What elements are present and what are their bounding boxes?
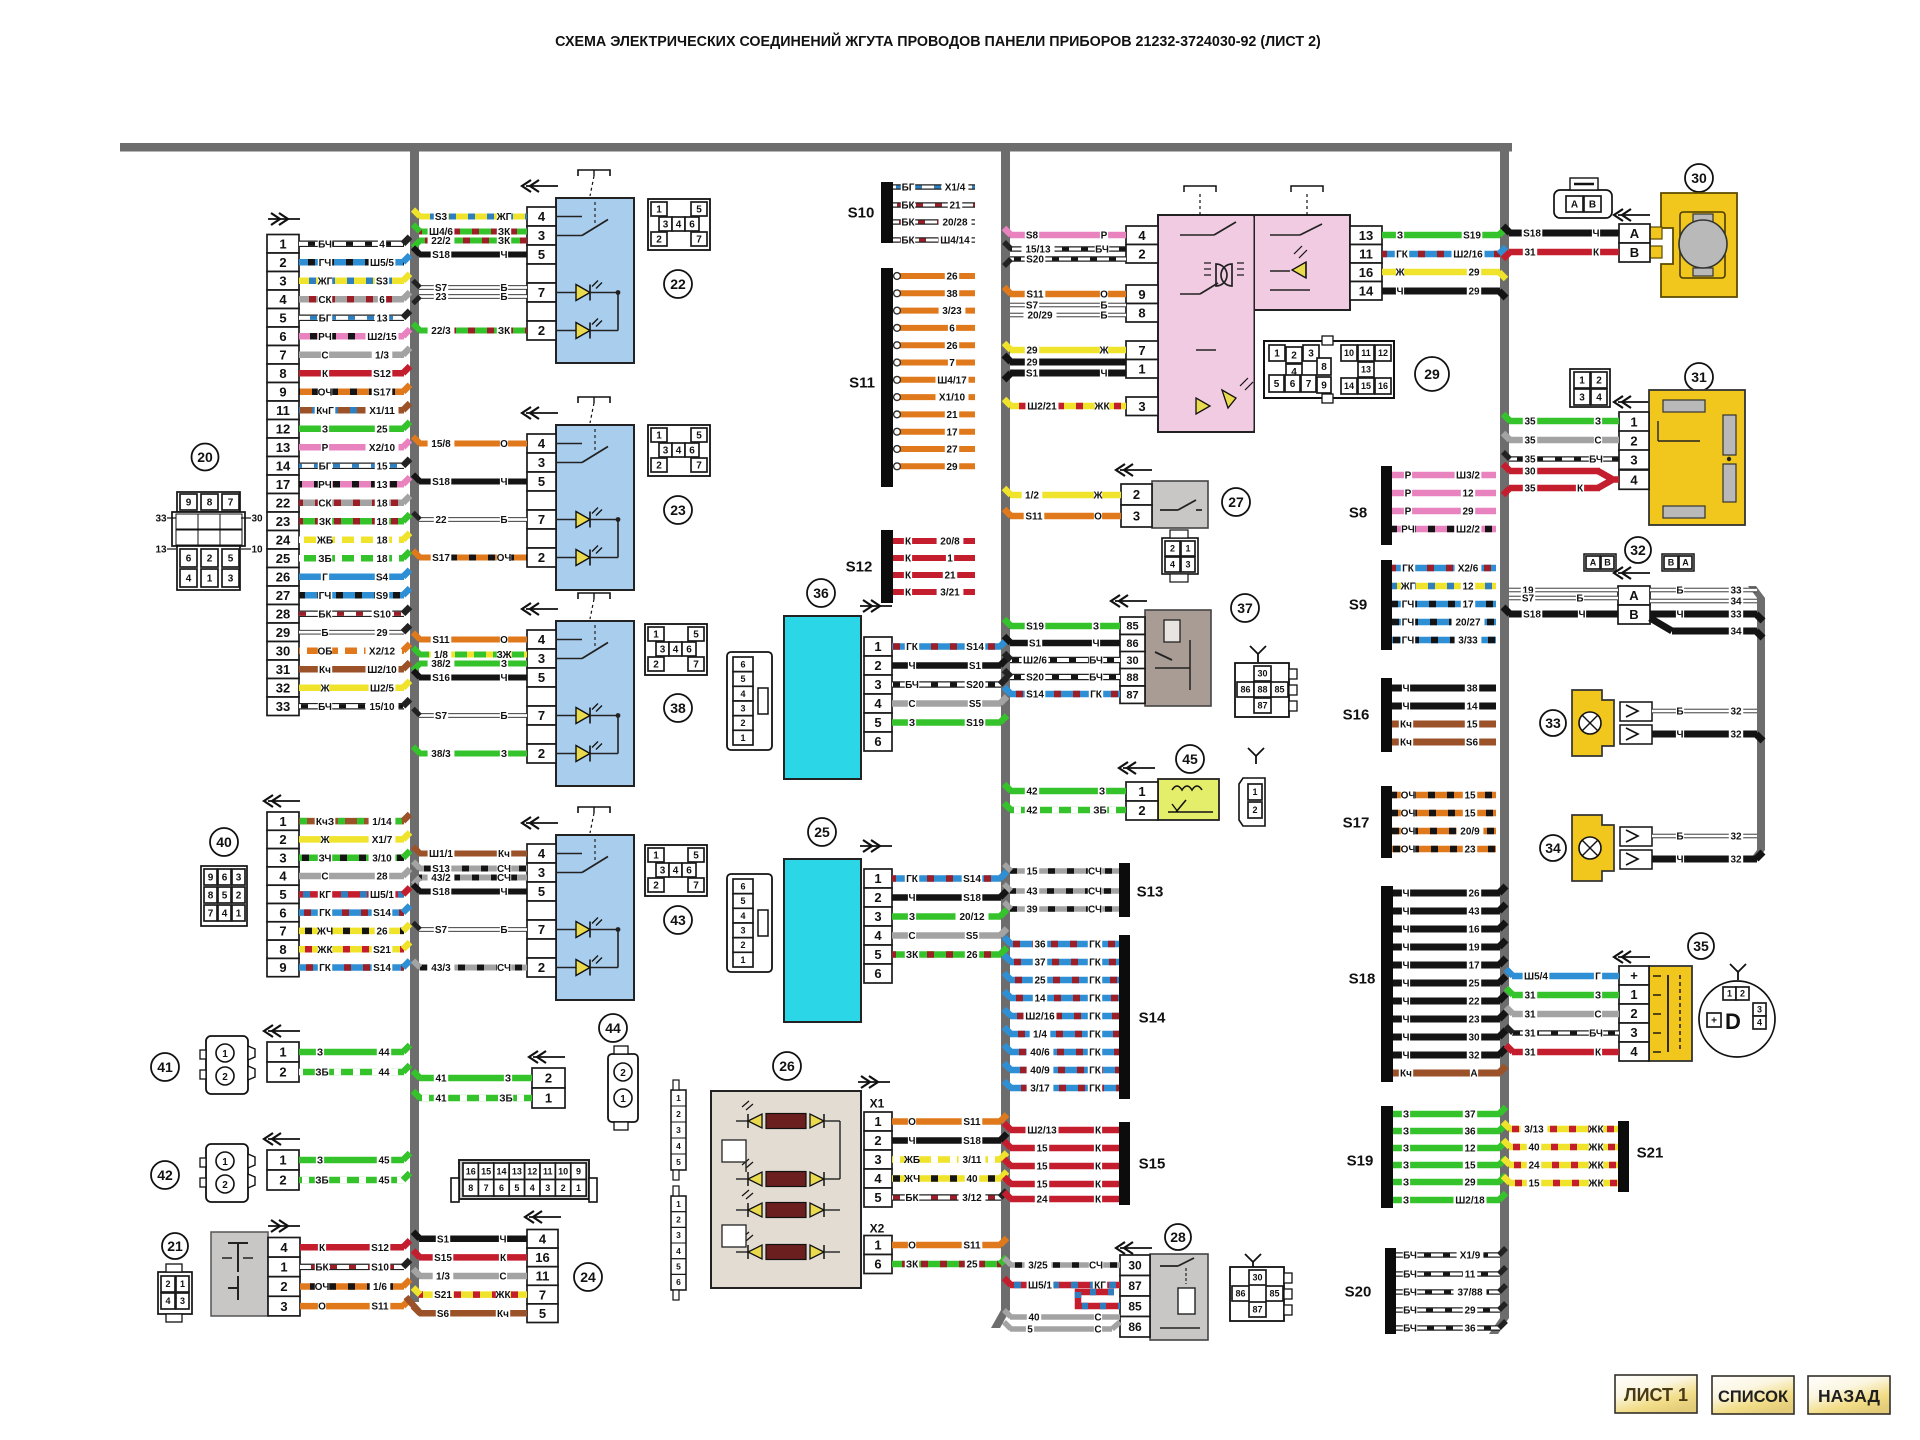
svg-text:ЖЧ: ЖЧ <box>903 1174 920 1185</box>
svg-text:Х2/10: Х2/10 <box>369 443 396 454</box>
svg-text:З: З <box>1595 417 1601 428</box>
svg-text:30: 30 <box>251 514 263 525</box>
svg-text:32: 32 <box>1730 832 1742 843</box>
svg-text:4: 4 <box>676 1246 681 1256</box>
svg-text:15: 15 <box>1036 1180 1048 1191</box>
svg-text:БЧ: БЧ <box>1403 1306 1417 1317</box>
svg-text:45: 45 <box>378 1156 390 1167</box>
svg-text:4: 4 <box>1170 560 1175 570</box>
svg-text:Ш2/16: Ш2/16 <box>1025 1012 1055 1023</box>
svg-text:Ж: Ж <box>1092 491 1103 502</box>
svg-text:30: 30 <box>1691 170 1707 186</box>
svg-text:БГ: БГ <box>319 313 332 324</box>
svg-text:РЧ: РЧ <box>1401 525 1415 536</box>
svg-text:К: К <box>319 1243 326 1254</box>
svg-text:37/88: 37/88 <box>1457 1288 1482 1299</box>
svg-text:ЖГ: ЖГ <box>317 276 333 287</box>
svg-text:3/25: 3/25 <box>1028 1261 1048 1272</box>
svg-text:13: 13 <box>376 313 388 324</box>
svg-text:БК: БК <box>901 236 915 247</box>
svg-text:2: 2 <box>538 746 545 761</box>
svg-text:З: З <box>909 912 915 923</box>
svg-text:23: 23 <box>1468 1015 1480 1026</box>
svg-text:20/12: 20/12 <box>959 912 984 923</box>
svg-text:1: 1 <box>207 574 213 585</box>
svg-text:Б: Б <box>500 515 507 526</box>
svg-text:Б: Б <box>500 711 507 722</box>
svg-text:S18: S18 <box>963 1136 981 1147</box>
svg-text:6: 6 <box>676 1277 681 1287</box>
svg-text:32: 32 <box>1730 730 1742 741</box>
svg-text:ЗБ: ЗБ <box>315 1068 328 1079</box>
svg-text:S19: S19 <box>1463 231 1481 242</box>
svg-text:45: 45 <box>1182 751 1198 767</box>
svg-text:1: 1 <box>280 1260 287 1275</box>
svg-text:13: 13 <box>512 1167 522 1177</box>
svg-text:S12: S12 <box>846 558 873 575</box>
svg-text:Р: Р <box>1405 489 1412 500</box>
svg-text:15: 15 <box>1466 720 1478 731</box>
svg-text:ОЧ: ОЧ <box>1401 845 1416 856</box>
svg-text:С: С <box>499 1272 506 1283</box>
svg-text:4: 4 <box>186 574 192 585</box>
svg-text:З: З <box>1093 622 1099 633</box>
svg-text:85: 85 <box>1126 621 1138 633</box>
svg-text:S9: S9 <box>376 591 389 602</box>
svg-text:34: 34 <box>1730 597 1742 608</box>
svg-text:3: 3 <box>874 1152 881 1167</box>
svg-text:S20: S20 <box>1026 255 1044 266</box>
svg-text:30: 30 <box>1468 1033 1480 1044</box>
svg-text:19: 19 <box>1468 943 1480 954</box>
svg-text:14: 14 <box>1359 283 1374 298</box>
svg-text:БЧ: БЧ <box>1095 245 1109 256</box>
svg-text:ГК: ГК <box>1090 690 1103 701</box>
svg-text:34: 34 <box>1545 840 1561 856</box>
svg-text:2: 2 <box>1596 376 1602 387</box>
svg-text:8: 8 <box>208 891 214 902</box>
svg-text:ЖГ: ЖГ <box>1400 582 1416 593</box>
svg-text:2: 2 <box>1630 433 1637 448</box>
svg-text:Ч: Ч <box>1402 979 1409 990</box>
svg-text:1: 1 <box>576 1183 581 1193</box>
svg-text:БК: БК <box>901 201 915 212</box>
svg-text:22/2: 22/2 <box>431 236 451 247</box>
svg-text:12: 12 <box>1378 348 1388 358</box>
svg-text:3: 3 <box>663 220 669 231</box>
svg-text:4: 4 <box>379 239 385 250</box>
svg-text:3: 3 <box>1133 509 1140 524</box>
svg-text:1: 1 <box>279 1153 286 1168</box>
svg-text:1: 1 <box>1138 361 1145 376</box>
svg-text:30: 30 <box>1257 669 1267 679</box>
svg-text:1: 1 <box>653 630 659 641</box>
svg-text:6: 6 <box>686 866 692 877</box>
svg-text:3/17: 3/17 <box>1030 1084 1050 1095</box>
svg-text:23: 23 <box>276 514 290 529</box>
svg-text:ЖБ: ЖБ <box>903 1155 920 1166</box>
svg-text:Х2/12: Х2/12 <box>369 646 396 657</box>
svg-text:9: 9 <box>186 498 192 509</box>
svg-text:Кч: Кч <box>1400 720 1412 731</box>
svg-text:41: 41 <box>435 1094 447 1105</box>
svg-text:1/14: 1/14 <box>372 817 392 828</box>
svg-text:21: 21 <box>944 571 956 582</box>
svg-text:БГ: БГ <box>319 461 332 472</box>
svg-text:О: О <box>318 1302 326 1313</box>
svg-text:ЗК: ЗК <box>498 326 511 337</box>
svg-text:35: 35 <box>1524 436 1536 447</box>
svg-text:6: 6 <box>499 1183 504 1193</box>
svg-text:С: С <box>321 872 328 883</box>
svg-text:1: 1 <box>676 1093 681 1103</box>
svg-text:87: 87 <box>1257 701 1267 711</box>
svg-text:S20: S20 <box>1026 673 1044 684</box>
svg-text:БЧ: БЧ <box>1403 1251 1417 1262</box>
svg-text:29: 29 <box>1424 366 1440 382</box>
svg-text:10: 10 <box>251 545 263 556</box>
svg-text:S1: S1 <box>1029 639 1042 650</box>
svg-text:S11: S11 <box>1026 290 1044 301</box>
svg-text:Ч: Ч <box>1402 1015 1409 1026</box>
svg-text:28: 28 <box>276 606 290 621</box>
svg-text:13: 13 <box>1361 365 1371 375</box>
svg-text:3: 3 <box>236 873 242 884</box>
svg-text:7: 7 <box>693 660 699 671</box>
svg-text:1: 1 <box>1630 414 1637 429</box>
svg-text:О: О <box>1100 290 1108 301</box>
svg-text:X1: X1 <box>870 1096 885 1110</box>
svg-text:3: 3 <box>1138 399 1145 414</box>
svg-text:S7: S7 <box>435 925 448 936</box>
svg-text:22: 22 <box>670 276 686 292</box>
svg-text:3/33: 3/33 <box>1458 636 1478 647</box>
svg-text:2: 2 <box>653 660 659 671</box>
svg-text:87: 87 <box>1126 690 1138 702</box>
svg-text:S16: S16 <box>432 673 450 684</box>
svg-text:S20: S20 <box>1345 1283 1372 1300</box>
svg-text:12: 12 <box>1462 582 1474 593</box>
svg-text:6: 6 <box>740 882 745 892</box>
svg-text:2: 2 <box>165 1279 170 1289</box>
svg-text:ГК: ГК <box>906 874 919 885</box>
svg-text:ГЧ: ГЧ <box>319 591 332 602</box>
svg-text:1/6: 1/6 <box>373 1282 387 1293</box>
svg-text:4: 4 <box>538 846 546 861</box>
svg-text:Б: Б <box>1676 707 1683 718</box>
svg-text:25: 25 <box>966 1260 978 1271</box>
svg-text:45: 45 <box>378 1176 390 1187</box>
svg-text:S21: S21 <box>434 1290 452 1301</box>
svg-text:42: 42 <box>1026 806 1038 817</box>
svg-text:ГК: ГК <box>1089 1084 1102 1095</box>
svg-text:4: 4 <box>1138 228 1146 243</box>
svg-text:5: 5 <box>874 947 881 962</box>
svg-text:4: 4 <box>280 1240 288 1255</box>
svg-text:32: 32 <box>1730 707 1742 718</box>
svg-text:2: 2 <box>236 891 242 902</box>
svg-text:14: 14 <box>276 458 291 473</box>
svg-text:18: 18 <box>376 535 388 546</box>
svg-text:С: С <box>321 350 328 361</box>
svg-text:2: 2 <box>279 1065 286 1080</box>
svg-text:1: 1 <box>279 1045 286 1060</box>
svg-text:Х1/10: Х1/10 <box>939 393 966 404</box>
svg-text:СПИСОК: СПИСОК <box>1718 1388 1789 1406</box>
svg-text:36: 36 <box>1464 1324 1476 1335</box>
svg-text:5: 5 <box>874 1190 881 1205</box>
svg-text:15/10: 15/10 <box>369 702 394 713</box>
svg-text:Ч: Ч <box>1396 287 1403 298</box>
svg-text:ГК: ГК <box>319 908 332 919</box>
svg-text:ЗБ: ЗБ <box>315 1176 328 1187</box>
svg-text:Ш5/1: Ш5/1 <box>370 890 394 901</box>
svg-text:З: З <box>322 424 328 435</box>
svg-text:24: 24 <box>1528 1161 1540 1172</box>
svg-text:В: В <box>1589 200 1596 211</box>
svg-text:14: 14 <box>496 1167 506 1177</box>
svg-text:1: 1 <box>222 1049 228 1060</box>
svg-text:5: 5 <box>693 630 699 641</box>
svg-text:24: 24 <box>1036 1195 1048 1206</box>
svg-text:18: 18 <box>376 498 388 509</box>
svg-text:S19: S19 <box>966 718 984 729</box>
svg-text:В: В <box>1668 558 1675 568</box>
svg-text:6: 6 <box>874 966 881 981</box>
svg-text:3: 3 <box>660 645 666 656</box>
svg-text:3: 3 <box>538 455 545 470</box>
svg-text:К: К <box>1095 1162 1102 1173</box>
svg-text:В: В <box>1630 245 1639 260</box>
svg-text:Ж: Ж <box>319 683 330 694</box>
svg-text:85: 85 <box>1274 685 1284 695</box>
svg-text:85: 85 <box>1128 1300 1142 1314</box>
svg-text:3/21: 3/21 <box>940 588 960 599</box>
svg-text:1: 1 <box>236 909 242 920</box>
svg-text:1: 1 <box>874 1238 881 1253</box>
svg-text:ЖК: ЖК <box>494 1290 511 1301</box>
svg-text:К: К <box>905 571 912 582</box>
svg-text:S15: S15 <box>434 1253 452 1264</box>
svg-text:8: 8 <box>279 942 286 957</box>
svg-text:НАЗАД: НАЗАД <box>1818 1386 1881 1406</box>
svg-text:9: 9 <box>1321 381 1327 392</box>
svg-text:Ч: Ч <box>500 250 507 261</box>
svg-text:ГК: ГК <box>1089 940 1102 951</box>
svg-text:5: 5 <box>228 554 234 565</box>
svg-text:Г: Г <box>1595 972 1601 983</box>
svg-text:2: 2 <box>1138 803 1145 818</box>
svg-text:X2: X2 <box>870 1221 885 1235</box>
svg-text:6: 6 <box>874 1257 881 1272</box>
svg-text:29: 29 <box>1464 1306 1476 1317</box>
svg-text:ЖК: ЖК <box>1587 1179 1604 1190</box>
svg-text:S13: S13 <box>1137 883 1164 900</box>
svg-text:23: 23 <box>670 502 686 518</box>
svg-text:1: 1 <box>180 1279 185 1289</box>
svg-text:О: О <box>908 1117 916 1128</box>
svg-text:31: 31 <box>1524 991 1536 1002</box>
svg-text:ЗК: ЗК <box>906 950 919 961</box>
svg-text:БЧ: БЧ <box>905 680 919 691</box>
svg-text:2: 2 <box>874 658 881 673</box>
svg-text:+: + <box>1630 968 1638 983</box>
svg-text:6: 6 <box>279 329 286 344</box>
svg-text:В: В <box>1629 607 1638 622</box>
svg-text:S14: S14 <box>1139 1009 1166 1026</box>
svg-text:ГК: ГК <box>1089 958 1102 969</box>
svg-text:18: 18 <box>376 517 388 528</box>
svg-text:35: 35 <box>1524 417 1536 428</box>
svg-text:S17: S17 <box>1343 814 1370 831</box>
svg-text:4: 4 <box>1630 1044 1638 1059</box>
svg-text:ЖГ: ЖГ <box>496 212 512 223</box>
svg-text:3/23: 3/23 <box>942 306 962 317</box>
svg-text:42: 42 <box>157 1167 173 1183</box>
svg-text:36: 36 <box>1464 1127 1476 1138</box>
svg-text:Ш2/13: Ш2/13 <box>1027 1126 1057 1137</box>
svg-text:Ч: Ч <box>500 477 507 488</box>
svg-text:85: 85 <box>1269 1289 1279 1299</box>
svg-text:32: 32 <box>1630 542 1646 558</box>
svg-text:24: 24 <box>580 1269 596 1285</box>
svg-text:2: 2 <box>1252 805 1257 815</box>
svg-text:ОЧ: ОЧ <box>1401 827 1416 838</box>
svg-text:15: 15 <box>1026 867 1038 878</box>
svg-text:14: 14 <box>1466 702 1478 713</box>
svg-text:S12: S12 <box>371 1243 389 1254</box>
svg-text:38: 38 <box>670 700 686 716</box>
svg-text:25: 25 <box>814 824 830 840</box>
svg-text:СЧ: СЧ <box>1089 1261 1103 1272</box>
svg-text:17: 17 <box>1468 961 1480 972</box>
svg-text:S5: S5 <box>966 931 979 942</box>
svg-text:2: 2 <box>279 832 286 847</box>
svg-text:41: 41 <box>435 1074 447 1085</box>
svg-text:2: 2 <box>740 718 745 728</box>
svg-text:10: 10 <box>558 1167 568 1177</box>
svg-text:40: 40 <box>1028 1313 1040 1324</box>
svg-text:ОБ: ОБ <box>318 646 333 657</box>
svg-text:1: 1 <box>1138 784 1145 799</box>
svg-text:S15: S15 <box>1139 1155 1166 1172</box>
svg-text:25: 25 <box>376 424 388 435</box>
svg-text:14: 14 <box>1344 381 1354 391</box>
svg-text:К: К <box>905 588 912 599</box>
svg-text:2: 2 <box>676 1215 681 1225</box>
svg-text:15: 15 <box>481 1167 491 1177</box>
svg-text:Ч: Ч <box>908 1136 915 1147</box>
svg-text:21: 21 <box>167 1238 183 1254</box>
svg-text:З: З <box>501 659 507 670</box>
svg-text:4: 4 <box>279 292 287 307</box>
svg-text:4: 4 <box>1630 472 1638 487</box>
svg-text:15: 15 <box>376 461 388 472</box>
svg-text:З: З <box>1403 1196 1409 1207</box>
svg-text:ЖБ: ЖБ <box>316 535 333 546</box>
svg-text:ГЧ: ГЧ <box>1402 618 1415 629</box>
svg-text:S10: S10 <box>848 204 875 221</box>
svg-text:Б: Б <box>500 925 507 936</box>
svg-text:Г: Г <box>322 572 328 583</box>
svg-text:2: 2 <box>222 1072 228 1083</box>
svg-text:5: 5 <box>676 1157 681 1167</box>
svg-text:39: 39 <box>1026 905 1038 916</box>
svg-text:Кч: Кч <box>498 849 510 860</box>
svg-text:33: 33 <box>1730 586 1742 597</box>
svg-text:2: 2 <box>279 1173 286 1188</box>
svg-text:27: 27 <box>276 588 290 603</box>
svg-text:2: 2 <box>874 1133 881 1148</box>
svg-text:ЗБ: ЗБ <box>318 554 331 565</box>
svg-text:8: 8 <box>1321 362 1327 373</box>
svg-text:ЖЧ: ЖЧ <box>316 927 333 938</box>
svg-text:S17: S17 <box>373 387 391 398</box>
svg-text:О: О <box>500 439 508 450</box>
svg-text:К: К <box>1095 1180 1102 1191</box>
svg-text:БЧ: БЧ <box>1589 455 1603 466</box>
svg-text:86: 86 <box>1240 685 1250 695</box>
svg-text:S4: S4 <box>376 572 389 583</box>
svg-text:4: 4 <box>874 928 882 943</box>
svg-text:С: С <box>1094 1325 1101 1336</box>
svg-text:6: 6 <box>222 873 228 884</box>
svg-text:3: 3 <box>1757 1005 1762 1015</box>
svg-text:2: 2 <box>538 550 545 565</box>
svg-text:ГК: ГК <box>1089 1066 1102 1077</box>
svg-text:S7: S7 <box>1522 594 1535 605</box>
svg-text:А: А <box>1590 558 1597 568</box>
svg-text:S5: S5 <box>969 699 982 710</box>
svg-text:О: О <box>1094 512 1102 523</box>
svg-text:16: 16 <box>1359 265 1373 280</box>
svg-text:S3: S3 <box>435 212 448 223</box>
svg-text:3: 3 <box>676 1230 681 1240</box>
svg-text:ГК: ГК <box>1089 1012 1102 1023</box>
svg-text:З: З <box>1397 231 1403 242</box>
svg-text:БЧ: БЧ <box>318 239 332 250</box>
svg-text:2: 2 <box>656 461 662 472</box>
svg-text:4: 4 <box>874 1171 882 1186</box>
svg-text:Ч: Ч <box>500 887 507 898</box>
svg-text:7: 7 <box>279 347 286 362</box>
svg-text:5: 5 <box>538 247 545 262</box>
svg-text:87: 87 <box>1252 1305 1262 1315</box>
svg-text:4: 4 <box>673 645 679 656</box>
svg-text:34: 34 <box>1730 627 1742 638</box>
svg-text:З: З <box>317 1156 323 1167</box>
svg-text:3: 3 <box>279 273 286 288</box>
svg-text:S18: S18 <box>432 477 450 488</box>
svg-text:З: З <box>1099 787 1105 798</box>
svg-text:1: 1 <box>279 814 286 829</box>
svg-text:32: 32 <box>1468 1051 1480 1062</box>
svg-text:S11: S11 <box>371 1302 389 1313</box>
svg-text:20/27: 20/27 <box>1455 618 1480 629</box>
svg-text:1: 1 <box>740 955 745 965</box>
svg-text:А: А <box>1630 226 1640 241</box>
svg-text:1: 1 <box>947 554 953 565</box>
svg-text:6: 6 <box>949 324 955 335</box>
svg-text:40: 40 <box>216 834 232 850</box>
svg-text:А: А <box>1682 558 1689 568</box>
svg-text:БЧ: БЧ <box>1089 673 1103 684</box>
svg-text:32: 32 <box>276 680 290 695</box>
svg-text:26: 26 <box>779 1058 795 1074</box>
svg-text:15: 15 <box>1464 809 1476 820</box>
svg-text:4: 4 <box>279 869 287 884</box>
svg-text:ГК: ГК <box>1396 250 1409 261</box>
